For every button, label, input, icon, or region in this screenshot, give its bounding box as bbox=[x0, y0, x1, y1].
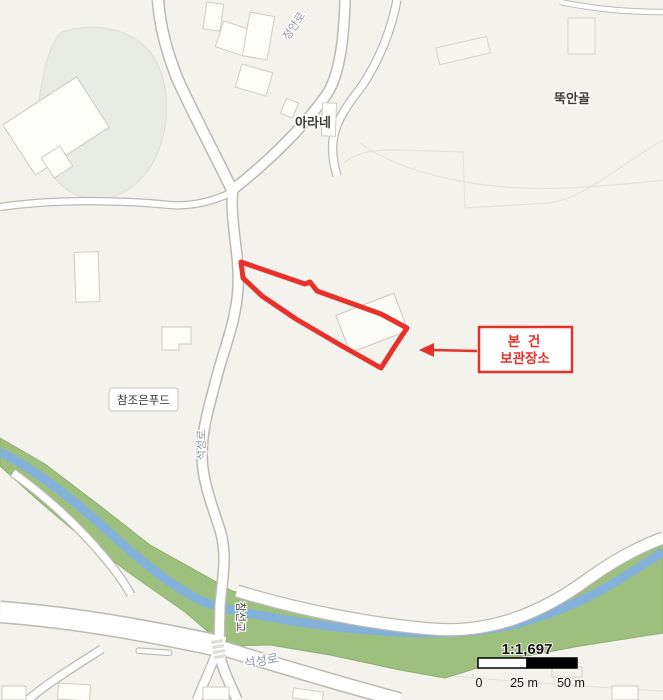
poi-label-arane: 아라네 bbox=[295, 115, 331, 130]
road-label-seokseong-vertical: 석성로 bbox=[195, 430, 208, 460]
annotation-line2: 보관장소 bbox=[500, 350, 550, 366]
scale-tick-25: 25 m bbox=[510, 676, 538, 690]
map-screenshot: 정안로 뚝안골 아라네 참조은푸드 석성로 참선교 석성로 본 건 보관장소 1… bbox=[0, 0, 663, 700]
bridge-label-chamseon: 참선교 bbox=[234, 602, 247, 632]
poi-label-chamjoeun-food: 참조은푸드 bbox=[117, 394, 170, 407]
map-canvas[interactable]: 정안로 뚝안골 아라네 참조은푸드 석성로 참선교 석성로 본 건 보관장소 1… bbox=[0, 0, 663, 700]
scale-bar-black-half bbox=[527, 658, 577, 668]
scale-tick-0: 0 bbox=[476, 676, 483, 690]
village-label-ddukangol: 뚝안골 bbox=[554, 91, 590, 106]
scale-bar-white-half bbox=[478, 658, 527, 668]
scale-ratio: 1:1,697 bbox=[502, 641, 553, 658]
scale-tick-50: 50 m bbox=[557, 676, 585, 690]
annotation-callout: 본 건 보관장소 bbox=[479, 327, 572, 372]
annotation-line1: 본 건 bbox=[508, 333, 543, 349]
